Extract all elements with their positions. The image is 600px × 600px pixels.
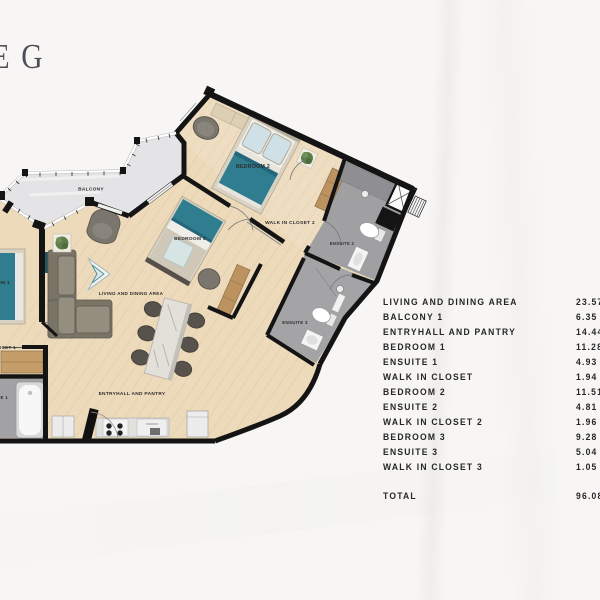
svg-text:5.04: 5.04 bbox=[576, 447, 598, 457]
svg-text:ENSUITE 3: ENSUITE 3 bbox=[383, 447, 438, 457]
svg-text:WALK IN CLOSET 1: WALK IN CLOSET 1 bbox=[0, 345, 16, 350]
svg-text:4.93: 4.93 bbox=[576, 357, 598, 367]
svg-text:1.05: 1.05 bbox=[576, 462, 598, 472]
svg-text:11.51: 11.51 bbox=[576, 387, 600, 397]
svg-text:23.57: 23.57 bbox=[576, 297, 600, 307]
svg-text:ENSUITE 1: ENSUITE 1 bbox=[0, 395, 8, 400]
svg-text:9.28: 9.28 bbox=[576, 432, 598, 442]
svg-text:ENTRYHALL AND PANTRY: ENTRYHALL AND PANTRY bbox=[99, 391, 166, 397]
svg-text:ENSUITE 2: ENSUITE 2 bbox=[330, 241, 355, 246]
svg-text:1.96: 1.96 bbox=[576, 417, 598, 427]
svg-text:TOTAL: TOTAL bbox=[383, 491, 417, 501]
svg-text:BEDROOM 3: BEDROOM 3 bbox=[383, 432, 446, 442]
svg-text:BEDROOM 2: BEDROOM 2 bbox=[236, 164, 270, 170]
svg-text:E G: E G bbox=[0, 37, 45, 76]
svg-text:ENSUITE 3: ENSUITE 3 bbox=[282, 320, 308, 325]
svg-text:96.08: 96.08 bbox=[576, 491, 600, 501]
svg-text:6.35: 6.35 bbox=[576, 312, 598, 322]
svg-text:ENSUITE 2: ENSUITE 2 bbox=[383, 402, 438, 412]
svg-text:BEDROOM 3: BEDROOM 3 bbox=[174, 236, 206, 242]
svg-text:WALK IN CLOSET: WALK IN CLOSET bbox=[383, 372, 473, 382]
svg-text:WALK IN CLOSET 2: WALK IN CLOSET 2 bbox=[383, 417, 483, 427]
svg-text:LIVING AND DINING AREA: LIVING AND DINING AREA bbox=[99, 291, 164, 296]
svg-text:14.44: 14.44 bbox=[576, 327, 600, 337]
svg-text:ENTRYHALL AND PANTRY: ENTRYHALL AND PANTRY bbox=[383, 327, 516, 337]
svg-text:WALK IN CLOSET 2: WALK IN CLOSET 2 bbox=[265, 220, 315, 226]
svg-text:LIVING AND DINING AREA: LIVING AND DINING AREA bbox=[383, 297, 518, 307]
svg-text:BEDROOM 2: BEDROOM 2 bbox=[383, 387, 446, 397]
svg-text:11.28: 11.28 bbox=[576, 342, 600, 352]
svg-text:4.81: 4.81 bbox=[576, 402, 598, 412]
svg-text:BALCONY: BALCONY bbox=[78, 187, 104, 193]
svg-text:WALK IN CLOSET 3: WALK IN CLOSET 3 bbox=[383, 462, 483, 472]
svg-text:BEDROOM 1: BEDROOM 1 bbox=[383, 342, 446, 352]
svg-text:1.94: 1.94 bbox=[576, 372, 598, 382]
svg-text:BEDROOM 1: BEDROOM 1 bbox=[0, 280, 10, 286]
svg-text:BALCONY 1: BALCONY 1 bbox=[383, 312, 443, 322]
svg-text:ENSUITE 1: ENSUITE 1 bbox=[383, 357, 438, 367]
